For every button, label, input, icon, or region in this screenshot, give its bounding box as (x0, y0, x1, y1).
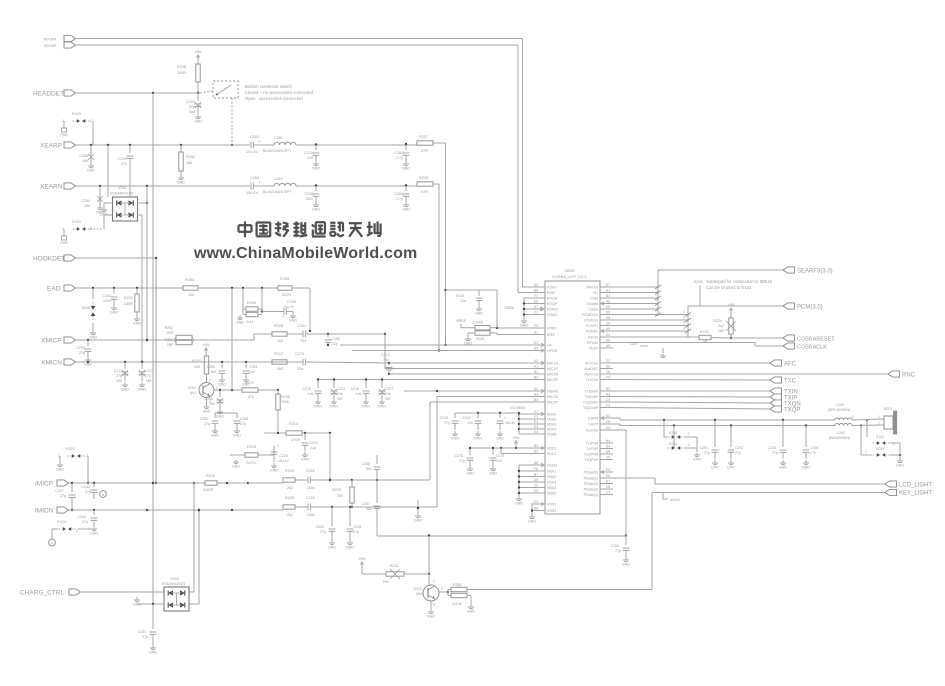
svg-text:V99: V99 (359, 557, 366, 561)
svg-text:R228: R228 (419, 176, 428, 180)
svg-text:1: 1 (433, 579, 435, 583)
svg-text:KEY_LIGHT: KEY_LIGHT (899, 491, 932, 497)
svg-text:GND: GND (133, 603, 141, 607)
svg-text:1n8: 1n8 (355, 392, 361, 396)
svg-text:IOdata: IOdata (587, 302, 598, 306)
svg-text:B6: B6 (534, 507, 538, 511)
svg-text:26P: 26P (167, 343, 174, 347)
svg-text:100n: 100n (305, 197, 313, 201)
svg-text:NM: NM (146, 379, 152, 383)
svg-text:E6: E6 (606, 474, 610, 478)
svg-text:B8: B8 (534, 289, 538, 293)
svg-text:47k: 47k (248, 395, 254, 399)
svg-text:RFIClk: RFIClk (587, 341, 598, 345)
svg-text:2: 2 (688, 432, 690, 436)
svg-text:GND: GND (203, 410, 211, 414)
svg-text:C8: C8 (606, 420, 611, 424)
svg-text:E206: E206 (694, 280, 702, 284)
svg-text:AGCOut: AGCOut (584, 372, 598, 376)
svg-text:R285: R285 (280, 277, 289, 281)
svg-text:B4: B4 (534, 444, 538, 448)
svg-text:C235: C235 (304, 151, 313, 155)
svg-text:+: + (258, 180, 261, 185)
svg-text:L280: L280 (274, 136, 282, 140)
svg-text:27p: 27p (353, 530, 359, 534)
svg-text:GND: GND (622, 563, 630, 567)
svg-text:C229: C229 (306, 496, 315, 500)
svg-text:GND: GND (216, 415, 224, 419)
svg-text:GND: GND (362, 405, 370, 409)
svg-text:32p: 32p (332, 342, 338, 346)
svg-text:MBIAS: MBIAS (547, 389, 559, 393)
svg-text:C3: C3 (606, 398, 611, 402)
svg-text:GND: GND (467, 610, 475, 614)
svg-text:B201: B201 (884, 407, 892, 411)
svg-text:RXQP: RXQP (547, 302, 558, 306)
svg-text:GND: GND (489, 472, 497, 476)
svg-text:E3: E3 (534, 430, 538, 434)
svg-text:RNC: RNC (902, 373, 916, 379)
svg-text:EAD: EAD (47, 286, 61, 293)
svg-text:C209: C209 (186, 100, 195, 104)
svg-text:R219: R219 (285, 469, 294, 473)
svg-text:E924: E924 (57, 520, 66, 524)
svg-text:LCD_LIGHT: LCD_LIGHT (899, 483, 932, 489)
svg-text:27p: 27p (459, 459, 465, 463)
svg-text:SD: SD (593, 291, 598, 295)
svg-text:TxIPhM: TxIPhM (586, 441, 598, 445)
svg-text:E7: E7 (606, 480, 610, 484)
svg-text:VBA2: VBA2 (547, 475, 556, 479)
svg-text:22R: 22R (167, 331, 174, 335)
svg-text:TEST: TEST (589, 346, 599, 350)
svg-text:D2: D2 (606, 333, 611, 337)
svg-text:TxIOutN: TxIOutN (585, 389, 599, 393)
svg-text:R272: R272 (245, 381, 254, 385)
svg-text:180R: 180R (124, 302, 133, 306)
svg-text:MIC2P: MIC2P (547, 400, 559, 404)
svg-text:VDD1: VDD1 (547, 446, 557, 450)
svg-text:GND: GND (515, 502, 523, 506)
svg-text:C236: C236 (304, 192, 313, 196)
svg-text:R291: R291 (165, 338, 173, 342)
svg-text:TxQPhM: TxQPhM (584, 452, 598, 456)
svg-text:C213: C213 (381, 353, 390, 357)
svg-text:A3: A3 (534, 393, 538, 397)
svg-text:GND: GND (414, 519, 422, 523)
svg-text:VBA5: VBA5 (547, 491, 556, 495)
svg-text:E928: E928 (82, 306, 90, 310)
svg-text:BLM21A601SPT: BLM21A601SPT (263, 190, 292, 194)
svg-text:R225: R225 (192, 359, 201, 363)
svg-text:C253: C253 (240, 417, 248, 421)
svg-text:A2: A2 (534, 359, 538, 363)
svg-text:VDA1: VDA1 (547, 412, 556, 416)
svg-text:COBBACLK: COBBACLK (797, 345, 827, 351)
svg-text:33n: 33n (460, 299, 466, 303)
svg-text:1n8: 1n8 (307, 392, 313, 396)
svg-text:PCMTx: PCMTx (586, 324, 598, 328)
svg-text:2.7p: 2.7p (396, 156, 403, 160)
svg-text:R217: R217 (274, 352, 283, 356)
svg-text:GND: GND (138, 388, 146, 392)
svg-text:D4: D4 (606, 426, 611, 430)
svg-text:2x10k: 2x10k (452, 602, 462, 606)
svg-text:27p: 27p (240, 422, 246, 426)
svg-text:100n: 100n (307, 486, 315, 490)
svg-text:27p: 27p (85, 490, 91, 494)
svg-text:V300: V300 (170, 577, 179, 581)
svg-text:E245: E245 (456, 294, 464, 298)
svg-text:GND: GND (236, 321, 244, 325)
svg-text:70n: 70n (383, 358, 389, 362)
svg-text:MIC3P: MIC3P (547, 378, 559, 382)
svg-text:COBBA_GJP_V3.1: COBBA_GJP_V3.1 (552, 274, 587, 279)
svg-text:C215: C215 (303, 387, 311, 391)
svg-text:NM: NM (117, 379, 123, 383)
svg-text:VSUB: VSUB (547, 463, 557, 467)
svg-text:56n: 56n (366, 467, 372, 471)
svg-text:D5: D5 (534, 347, 539, 351)
svg-text:2k2: 2k2 (287, 513, 293, 517)
svg-text:S7: S7 (534, 410, 538, 414)
svg-text:PWB: PWB (60, 133, 67, 137)
svg-text:GND: GND (90, 532, 98, 536)
svg-text:F2: F2 (534, 324, 538, 328)
svg-text:NM: NM (84, 204, 90, 208)
svg-text:2x1k: 2x1k (246, 320, 254, 324)
svg-text:C259: C259 (118, 157, 127, 161)
svg-text:V282: V282 (188, 386, 196, 390)
svg-text:1n0: 1n0 (249, 370, 255, 374)
svg-text:A5: A5 (534, 478, 538, 482)
svg-text:1n8: 1n8 (337, 392, 343, 396)
svg-text:EAPN: EAPN (588, 416, 598, 420)
svg-text:10n: 10n (467, 421, 473, 425)
svg-text:945: 945 (194, 365, 200, 369)
svg-text:1: 1 (865, 450, 867, 454)
svg-text:C231: C231 (138, 630, 146, 634)
svg-text:VSA3: VSA3 (547, 480, 556, 484)
svg-text:330R: 330R (177, 71, 186, 75)
svg-text:MIC1N: MIC1N (547, 361, 559, 365)
svg-text:HOOKDET: HOOKDET (33, 256, 65, 263)
svg-text:C261: C261 (81, 199, 90, 203)
svg-text:R229: R229 (332, 488, 341, 492)
svg-text:H4: H4 (606, 439, 611, 443)
svg-text:PCM(3.0): PCM(3.0) (797, 305, 823, 311)
svg-text:AuxDAC: AuxDAC (584, 367, 598, 371)
svg-text:C2: C2 (606, 359, 611, 363)
svg-text:GND: GND (87, 169, 95, 173)
svg-text:27p: 27p (735, 451, 741, 455)
svg-text:2: 2 (441, 587, 443, 591)
svg-text:S1: S1 (534, 331, 538, 335)
svg-text:21p: 21p (310, 446, 316, 450)
svg-text:ESDA6P1SC5: ESDA6P1SC5 (110, 192, 133, 196)
svg-text:C258: C258 (362, 462, 370, 466)
svg-text:C228: C228 (279, 454, 288, 458)
svg-text:2x47k: 2x47k (246, 461, 256, 465)
svg-text:V99: V99 (195, 50, 202, 54)
svg-text:R232: R232 (390, 564, 399, 568)
svg-text:C204: C204 (611, 544, 619, 548)
svg-text:GND: GND (711, 466, 719, 470)
svg-text:HEADDET: HEADDET (33, 91, 64, 98)
svg-text:F7: F7 (534, 294, 538, 298)
svg-text:220R: 220R (282, 293, 291, 297)
svg-text:Solderpad for connection to MB: Solderpad for connection to MBUS (706, 279, 772, 284)
svg-text:VSUB: VSUB (547, 313, 557, 317)
svg-text:C6: C6 (606, 370, 611, 374)
svg-text:E269: E269 (669, 442, 677, 446)
svg-text:GND: GND (177, 181, 185, 185)
svg-text:PData(3): PData(3) (584, 487, 598, 491)
svg-text:GND: GND (802, 466, 810, 470)
svg-text:C261: C261 (297, 324, 306, 328)
svg-text:B3: B3 (534, 398, 538, 402)
svg-text:AFCOut: AFCOut (585, 361, 598, 365)
svg-text:Cdata: Cdata (588, 307, 598, 311)
svg-text:A6: A6 (606, 300, 610, 304)
svg-text:GND: GND (427, 615, 435, 619)
svg-text:2k2: 2k2 (287, 486, 293, 490)
svg-text:E5: E5 (606, 468, 610, 472)
svg-text:L281: L281 (274, 177, 282, 181)
svg-text:10u,4V: 10u,4V (283, 305, 295, 309)
svg-text:RXQN: RXQN (547, 296, 558, 300)
svg-text:A7: A7 (534, 305, 538, 309)
svg-text:C233: C233 (353, 525, 361, 529)
svg-text:A5: A5 (606, 327, 610, 331)
svg-text:GND: GND (218, 383, 226, 387)
svg-text:A1: A1 (606, 289, 610, 293)
svg-text:RXINN: RXINN (44, 37, 57, 42)
svg-text:TxCOut: TxCOut (586, 378, 598, 382)
svg-text:R223: R223 (700, 330, 709, 334)
svg-text:100n: 100n (307, 513, 315, 517)
svg-text:A4: A4 (534, 387, 538, 391)
svg-text:C4: C4 (534, 500, 539, 504)
svg-text:R292: R292 (165, 326, 173, 330)
svg-text:S8: S8 (606, 316, 610, 320)
svg-text:PCMRx: PCMRx (586, 329, 599, 333)
svg-text:27p: 27p (142, 635, 148, 639)
svg-text:C242: C242 (81, 485, 90, 489)
svg-text:VBA4: VBA4 (547, 486, 556, 490)
svg-text:R282: R282 (186, 155, 195, 159)
svg-text:GND: GND (211, 434, 219, 438)
svg-text:C256: C256 (207, 365, 215, 369)
svg-text:NM: NM (718, 329, 724, 333)
svg-text:IMICP: IMICP (35, 481, 53, 488)
svg-text:TxIOutP: TxIOutP (585, 395, 599, 399)
svg-text:GND: GND (84, 363, 92, 367)
svg-text:GND: GND (528, 520, 536, 524)
svg-text:C207: C207 (55, 489, 64, 493)
svg-text:E922: E922 (66, 447, 75, 451)
svg-text:A5: A5 (606, 344, 610, 348)
svg-text:GND: GND (270, 469, 278, 473)
svg-text:27p: 27p (772, 451, 778, 455)
svg-text:SEARF3(3.0): SEARF3(3.0) (797, 269, 833, 275)
svg-text:27p: 27p (116, 374, 122, 378)
svg-text:EAPP: EAPP (588, 422, 598, 426)
svg-text:2: 2 (90, 119, 92, 123)
svg-text:GND: GND (896, 464, 904, 468)
svg-text:D4: D4 (534, 425, 539, 429)
svg-text:GND: GND (451, 437, 459, 441)
svg-text:C1: C1 (534, 311, 539, 315)
svg-text:NM: NM (383, 580, 389, 584)
svg-text:H3: H3 (606, 393, 611, 397)
svg-text:NM: NM (385, 397, 391, 401)
svg-text:C5: C5 (606, 456, 611, 460)
svg-text:2.7p: 2.7p (396, 197, 403, 201)
svg-text:IREF: IREF (547, 333, 556, 337)
svg-text:VDA5: VDA5 (547, 432, 556, 436)
svg-text:R214: R214 (289, 422, 298, 426)
svg-text:C293: C293 (76, 346, 85, 350)
svg-text:2x100k: 2x100k (472, 321, 484, 325)
svg-text:1: 1 (209, 378, 211, 382)
svg-text:4: 4 (683, 327, 685, 331)
svg-text:1: 1 (878, 415, 880, 419)
svg-text:GND: GND (402, 208, 410, 212)
svg-text:C216: C216 (351, 387, 359, 391)
svg-text:C257: C257 (362, 502, 370, 506)
svg-text:C2: C2 (534, 484, 539, 488)
svg-text:L202: L202 (837, 431, 845, 435)
svg-text:2: 2 (688, 443, 690, 447)
svg-text:33n: 33n (297, 367, 303, 371)
svg-text:C284: C284 (394, 192, 403, 196)
svg-text:VSS1: VSS1 (547, 502, 556, 506)
svg-text:B7: B7 (534, 473, 538, 477)
svg-text:GND: GND (149, 651, 157, 655)
svg-text:+: + (258, 139, 261, 144)
svg-text:70n: 70n (300, 339, 306, 343)
svg-text:F3: F3 (606, 404, 610, 408)
svg-text:R218: R218 (274, 324, 283, 328)
svg-text:R281: R281 (476, 337, 485, 341)
svg-text:B1: B1 (606, 294, 610, 298)
svg-text:V202: V202 (414, 587, 422, 591)
svg-text:TXQP: TXQP (784, 408, 800, 414)
svg-text:C288: C288 (331, 337, 340, 341)
svg-text:BLM21A601SPT: BLM21A601SPT (263, 149, 292, 153)
svg-text:C247: C247 (463, 416, 471, 420)
svg-text:GND: GND (233, 434, 241, 438)
svg-text:C244: C244 (102, 294, 111, 298)
svg-text:C275: C275 (496, 454, 504, 458)
svg-text:E6: E6 (534, 300, 538, 304)
svg-text:B1: B1 (534, 370, 538, 374)
svg-text:470R: 470R (291, 438, 300, 442)
svg-text:C293: C293 (768, 446, 776, 450)
svg-text:GND: GND (402, 167, 410, 171)
svg-text:GND: GND (56, 468, 64, 472)
svg-text:XEARP: XEARP (40, 143, 62, 150)
svg-text:C7: C7 (606, 491, 611, 495)
svg-text:1: 1 (683, 310, 685, 314)
svg-text:C296: C296 (287, 300, 296, 304)
svg-text:GND: GND (194, 120, 202, 124)
svg-text:GND: GND (378, 405, 386, 409)
svg-text:C3: C3 (534, 489, 539, 493)
svg-text:10k: 10k (188, 293, 194, 297)
svg-text:47R: 47R (421, 149, 428, 153)
svg-text:VDA3: VDA3 (547, 422, 556, 426)
svg-text:COBBARESET: COBBARESET (797, 337, 835, 343)
svg-text:XEARN: XEARN (40, 184, 63, 191)
svg-text:47R: 47R (421, 190, 428, 194)
svg-text:GND: GND (346, 546, 354, 550)
svg-text:XMICN: XMICN (41, 360, 62, 367)
svg-text:PCMDClk: PCMDClk (582, 313, 598, 317)
svg-text:10u,4V: 10u,4V (246, 191, 259, 195)
svg-text:27p: 27p (79, 351, 85, 355)
svg-text:GND: GND (314, 405, 322, 409)
svg-text:1n0: 1n0 (307, 156, 313, 160)
svg-text:R227: R227 (419, 135, 428, 139)
svg-text:E205: E205 (876, 447, 884, 451)
svg-text:CSIn: CSIn (590, 296, 598, 300)
svg-text:R215: R215 (247, 445, 256, 449)
svg-text:E1: E1 (534, 341, 538, 345)
svg-text:N200: N200 (565, 268, 575, 273)
svg-text:HF: HF (547, 343, 553, 347)
svg-text:VDD2: VDD2 (547, 452, 557, 456)
svg-text:E929: E929 (72, 112, 81, 116)
svg-text:27p: 27p (82, 520, 88, 524)
svg-text:NM: NM (189, 110, 195, 114)
svg-text:2: 2 (852, 415, 854, 419)
svg-text:V99: V99 (728, 303, 735, 307)
svg-text:+: + (282, 314, 285, 319)
svg-text:GND: GND (133, 322, 141, 326)
svg-text:D6: D6 (606, 339, 611, 343)
svg-text:F1: F1 (534, 415, 538, 419)
svg-text:www.ChinaMobileWorld.com: www.ChinaMobileWorld.com (193, 245, 417, 262)
svg-text:56n: 56n (366, 507, 372, 511)
svg-text:RXIN: RXIN (547, 285, 556, 289)
svg-text:GND: GND (289, 319, 297, 323)
svg-text:PData(2): PData(2) (584, 482, 598, 486)
svg-text:R216: R216 (206, 474, 215, 478)
svg-text:PData(0): PData(0) (584, 470, 598, 474)
svg-text:GND: GND (727, 466, 735, 470)
svg-text:L207: L207 (630, 342, 638, 346)
svg-text:300k: 300k (281, 400, 289, 404)
svg-text:TxQOutN: TxQOutN (583, 400, 599, 404)
svg-text:2: 2 (76, 529, 78, 533)
svg-text:B2: B2 (534, 376, 538, 380)
svg-text:C219: C219 (309, 441, 318, 445)
svg-text:L200: L200 (836, 403, 844, 407)
svg-text:18u,4V: 18u,4V (278, 459, 289, 463)
svg-text:A1: A1 (534, 365, 538, 369)
svg-text:(SRY,100MHz): (SRY,100MHz) (828, 408, 850, 412)
svg-text:C212: C212 (145, 369, 153, 373)
svg-text:H2: H2 (606, 387, 611, 391)
svg-text:GND: GND (121, 388, 129, 392)
svg-text:10n: 10n (496, 459, 502, 463)
svg-text:3: 3 (683, 321, 685, 325)
svg-text:ESDA6V1SC5: ESDA6V1SC5 (162, 582, 185, 586)
svg-text:D5: D5 (606, 311, 611, 315)
svg-text:D3: D3 (534, 450, 539, 454)
